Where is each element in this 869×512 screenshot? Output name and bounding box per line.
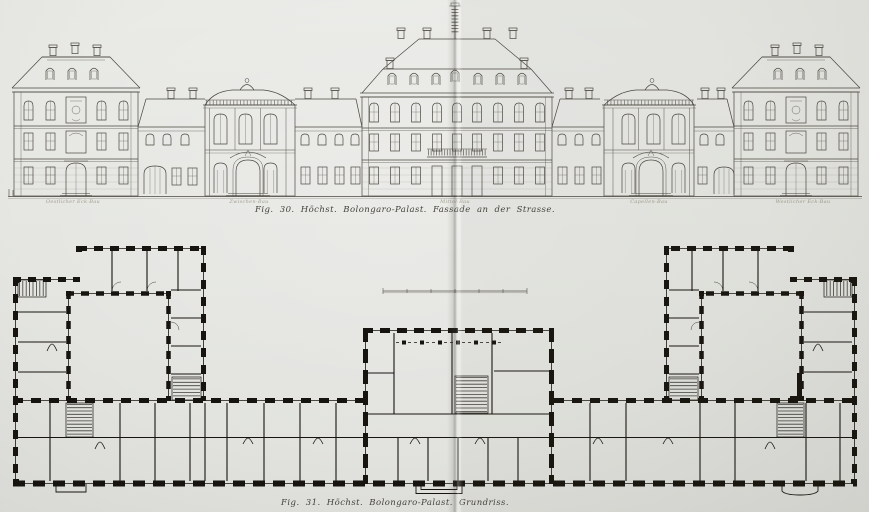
ground-floor-plan-drawing [13, 246, 857, 495]
book-plate-page: Oestlicher Eck-Bau Zwischen-Bau Mittel-B… [0, 0, 869, 512]
figure-31-caption: Fig. 31. Höchst. Bolongaro-Palast. Grund… [245, 498, 545, 508]
pavilion-label-west-corner: Westlicher Eck-Bau [776, 199, 831, 205]
facade-elevation-drawing [8, 3, 862, 198]
architectural-drawings [0, 0, 869, 512]
scale-bar [383, 288, 527, 294]
figure-30-caption: Fig. 30. Höchst. Bolongaro-Palast. Fassa… [250, 205, 560, 215]
pavilion-label-chapel-wing: Capellen-Bau [630, 199, 668, 205]
pavilion-label-east-corner: Oestlicher Eck-Bau [46, 199, 100, 205]
